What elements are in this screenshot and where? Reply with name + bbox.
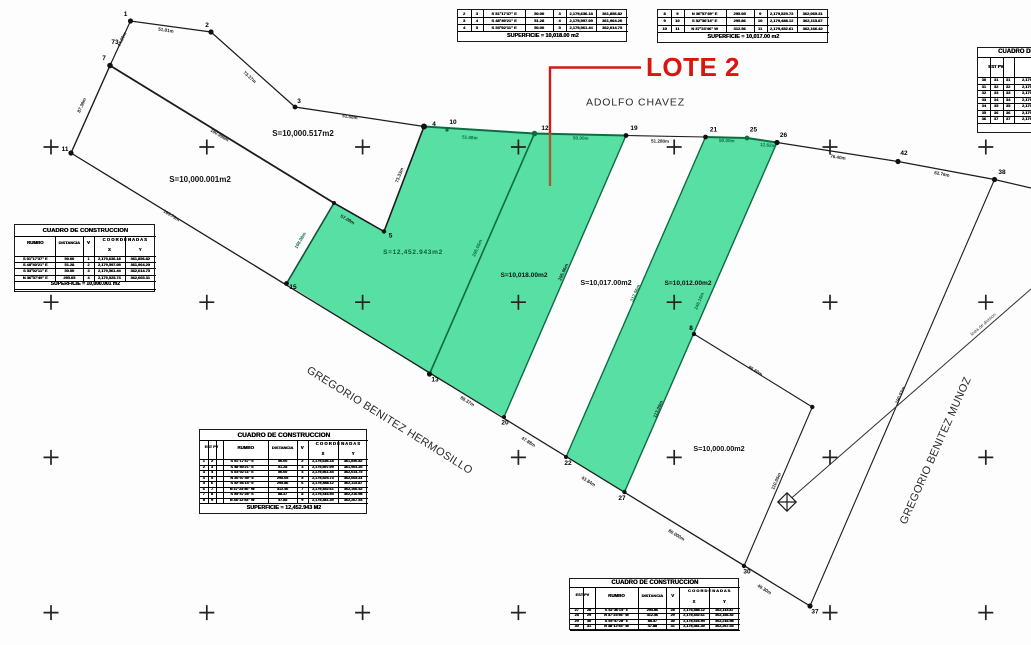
svg-text:1: 1 xyxy=(124,11,128,18)
svg-text:S=10,000.517m2: S=10,000.517m2 xyxy=(272,129,334,138)
svg-text:51.58m: 51.58m xyxy=(342,113,358,120)
svg-text:190.53m: 190.53m xyxy=(894,386,906,405)
svg-text:80.000m: 80.000m xyxy=(667,528,685,542)
svg-text:27: 27 xyxy=(618,495,626,502)
svg-text:86.60m: 86.60m xyxy=(747,365,763,377)
svg-text:5: 5 xyxy=(389,233,393,240)
svg-text:3: 3 xyxy=(297,98,301,105)
svg-text:42: 42 xyxy=(900,150,908,157)
svg-text:S=10,017.00m2: S=10,017.00m2 xyxy=(580,278,631,287)
svg-text:50.00m: 50.00m xyxy=(719,138,735,143)
svg-text:GREGORIO BENITEZ MUNOZ: GREGORIO BENITEZ MUNOZ xyxy=(898,375,974,526)
svg-text:165.79m: 165.79m xyxy=(162,209,180,223)
svg-text:180.996m: 180.996m xyxy=(209,128,229,143)
svg-text:S=10,012.00m2: S=10,012.00m2 xyxy=(664,280,711,287)
svg-text:19: 19 xyxy=(630,125,638,132)
svg-text:linea de division: linea de division xyxy=(969,312,997,337)
svg-text:20: 20 xyxy=(501,420,509,427)
svg-text:S=12,452.943m2: S=12,452.943m2 xyxy=(383,249,443,256)
svg-text:S=10,018.00m2: S=10,018.00m2 xyxy=(500,272,547,279)
svg-text:25: 25 xyxy=(750,127,758,134)
svg-text:87.38m: 87.38m xyxy=(76,97,87,113)
svg-text:12: 12 xyxy=(541,125,549,132)
svg-text:73.37m: 73.37m xyxy=(242,70,257,84)
svg-text:51.280m: 51.280m xyxy=(651,139,669,144)
svg-text:50.00m: 50.00m xyxy=(573,136,589,141)
svg-text:22: 22 xyxy=(564,460,572,467)
svg-text:51.81m: 51.81m xyxy=(158,27,174,34)
svg-text:11: 11 xyxy=(62,146,69,153)
svg-text:8: 8 xyxy=(689,325,693,332)
svg-text:13: 13 xyxy=(431,377,439,384)
svg-text:30: 30 xyxy=(743,569,751,576)
svg-text:37: 37 xyxy=(811,609,819,616)
svg-text:4: 4 xyxy=(432,121,436,128)
svg-text:49.30m: 49.30m xyxy=(756,583,772,595)
svg-text:2: 2 xyxy=(205,22,209,29)
svg-text:38: 38 xyxy=(998,169,1006,176)
svg-text:21: 21 xyxy=(710,127,718,134)
svg-text:15: 15 xyxy=(289,284,297,291)
svg-text:10: 10 xyxy=(449,119,457,126)
svg-text:26: 26 xyxy=(780,132,788,139)
svg-text:S=10,000.00m2: S=10,000.00m2 xyxy=(693,444,744,453)
svg-text:43.84m: 43.84m xyxy=(580,475,596,487)
svg-text:76.40m: 76.40m xyxy=(830,154,846,161)
svg-text:S=10,000.001m2: S=10,000.001m2 xyxy=(169,175,231,184)
svg-text:108.08m: 108.08m xyxy=(294,231,308,249)
svg-text:7: 7 xyxy=(102,55,106,62)
svg-text:ADOLFO CHAVEZ: ADOLFO CHAVEZ xyxy=(586,97,685,109)
